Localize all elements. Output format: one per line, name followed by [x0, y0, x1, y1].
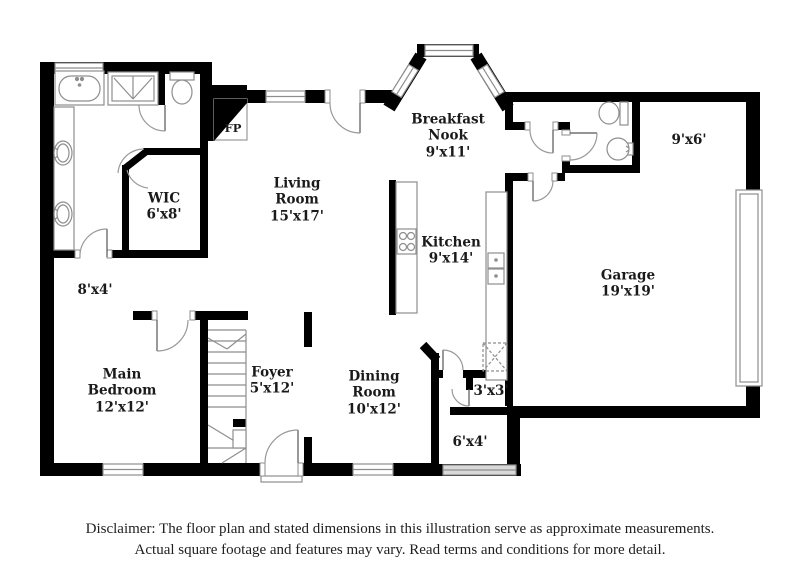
- living-patio-door: [330, 103, 360, 133]
- pedestal-sink-icon: [607, 138, 633, 160]
- dining-window: [353, 464, 393, 475]
- entry-window: [443, 465, 516, 475]
- living-room-window: [266, 91, 305, 102]
- floor-plan: Living Room 15'x17' Breakfast Nook 9'x11…: [0, 0, 800, 582]
- bay-window: [392, 45, 504, 97]
- closet-door: [452, 389, 469, 406]
- bedroom-window: [103, 464, 143, 475]
- front-door: [265, 430, 298, 463]
- front-door-threshold: [261, 476, 302, 482]
- double-vanity-icon: [54, 107, 74, 250]
- bathtub-icon: [55, 71, 104, 105]
- floor-plan-drawing: [0, 0, 800, 582]
- shower-icon: [108, 72, 158, 105]
- wc-door: [139, 105, 165, 131]
- bedroom-door: [157, 320, 188, 351]
- disclaimer: Disclaimer: The floor plan and stated di…: [0, 519, 800, 562]
- kitchen-island-wall: [389, 180, 396, 315]
- kitchen-sink-icon: [488, 253, 504, 284]
- vestibule-door: [530, 130, 553, 153]
- disclaimer-line-1: Disclaimer: The floor plan and stated di…: [0, 519, 800, 540]
- hall-door: [443, 350, 463, 370]
- stairs-icon: [208, 330, 246, 463]
- fixtures: [54, 71, 633, 463]
- fireplace: [214, 99, 247, 141]
- toilet-icon: [170, 72, 194, 104]
- half-bath-toilet-icon: [599, 102, 628, 125]
- kitchen-counter: [486, 192, 507, 380]
- garage-door: [736, 190, 762, 386]
- disclaimer-line-2: Actual square footage and features may v…: [0, 540, 800, 561]
- cooktop-icon: [397, 229, 416, 254]
- garage-entry-door: [533, 181, 553, 201]
- bathroom-door: [80, 229, 107, 257]
- half-bath-door: [570, 133, 597, 160]
